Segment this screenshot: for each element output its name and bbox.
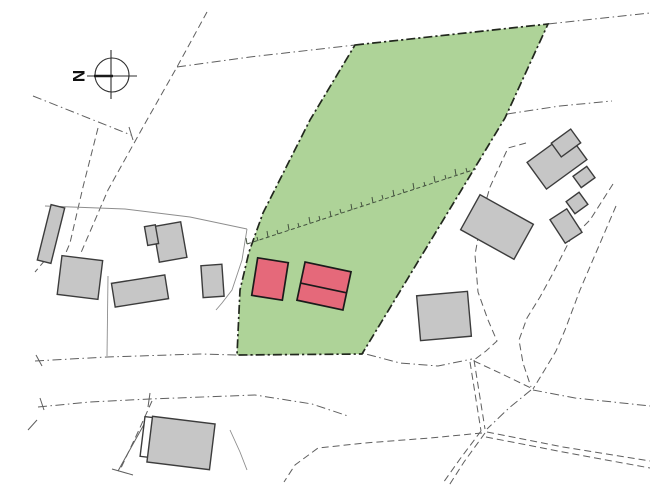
- existing-building: [147, 416, 215, 469]
- existing-building: [57, 256, 102, 300]
- existing-building-annex: [144, 225, 158, 246]
- site-plan: N: [0, 0, 650, 487]
- proposed-building-2: [297, 262, 351, 310]
- north-label: N: [69, 70, 88, 82]
- proposed-building-1: [252, 258, 289, 300]
- existing-building: [201, 264, 224, 297]
- existing-building: [417, 291, 472, 340]
